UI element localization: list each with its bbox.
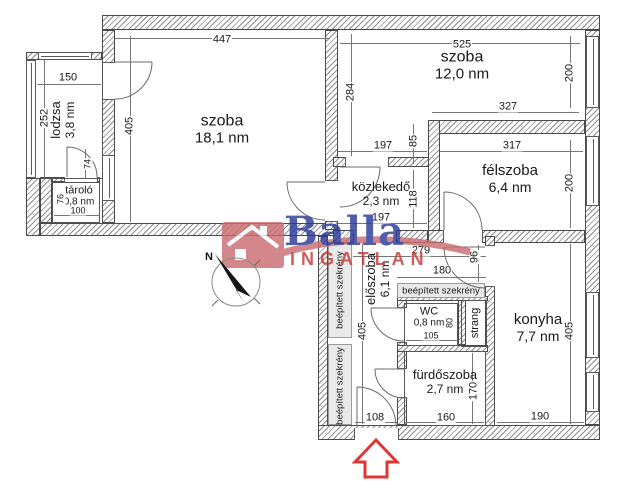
dimension-108: 108 xyxy=(365,413,385,424)
room-label-wc: WC0,8 nm xyxy=(414,305,445,329)
dimension-252: 252 xyxy=(40,108,51,128)
dimension-200: 200 xyxy=(565,173,576,193)
room-label-kozlekedo: közlekedő2,3 nm xyxy=(352,180,411,208)
compass-north-icon: N xyxy=(203,246,269,312)
room-label-tarolo: tároló0,8 nm xyxy=(64,184,95,208)
dimension-76: 76 xyxy=(57,193,66,205)
dimension-405: 405 xyxy=(565,321,576,341)
room-label-szoba-1: szoba18,1 nm xyxy=(195,113,249,148)
dimension-200: 200 xyxy=(565,63,576,83)
closet-label-szekreny-hall: beépített szekrény xyxy=(402,286,480,297)
dimension-105: 105 xyxy=(422,332,439,341)
compass-n-label: N xyxy=(205,251,213,263)
dimension-190: 190 xyxy=(530,412,550,423)
entrance-arrow-icon xyxy=(352,437,400,481)
dimension-150: 150 xyxy=(58,73,78,84)
dimension-85: 85 xyxy=(409,134,420,148)
dimension-118: 118 xyxy=(409,189,420,209)
logo-sub-text: INGATLAN xyxy=(290,250,430,268)
room-label-strang: strang xyxy=(469,308,481,339)
dimension-74: 74 xyxy=(84,158,93,170)
dimension-80: 80 xyxy=(446,317,455,329)
dimension-284: 284 xyxy=(346,82,357,102)
dimension-327: 327 xyxy=(498,102,518,113)
dimension-447: 447 xyxy=(212,35,232,46)
dimension-317: 317 xyxy=(502,141,522,152)
dimension-405: 405 xyxy=(358,321,369,341)
dimension-160: 160 xyxy=(436,413,456,424)
room-label-szoba-2: szoba12,0 nm xyxy=(435,49,489,84)
room-label-konyha: konyha7,7 nm xyxy=(514,312,562,344)
floor-plan: Balla INGATLAN N lodzsa3,8 nmszoba18,1 n… xyxy=(0,0,640,480)
room-label-lodzsa: lodzsa3,8 nm xyxy=(49,101,77,139)
dimension-525: 525 xyxy=(452,40,472,51)
dimension-170: 170 xyxy=(469,381,480,401)
dimension-100: 100 xyxy=(69,207,86,216)
closet-label-szekreny-left-bottom: beépített szekrény xyxy=(335,347,346,425)
room-label-felszoba: félszoba6,4 nm xyxy=(482,163,538,195)
dimension-405: 405 xyxy=(125,116,136,136)
dimension-197: 197 xyxy=(373,141,393,152)
